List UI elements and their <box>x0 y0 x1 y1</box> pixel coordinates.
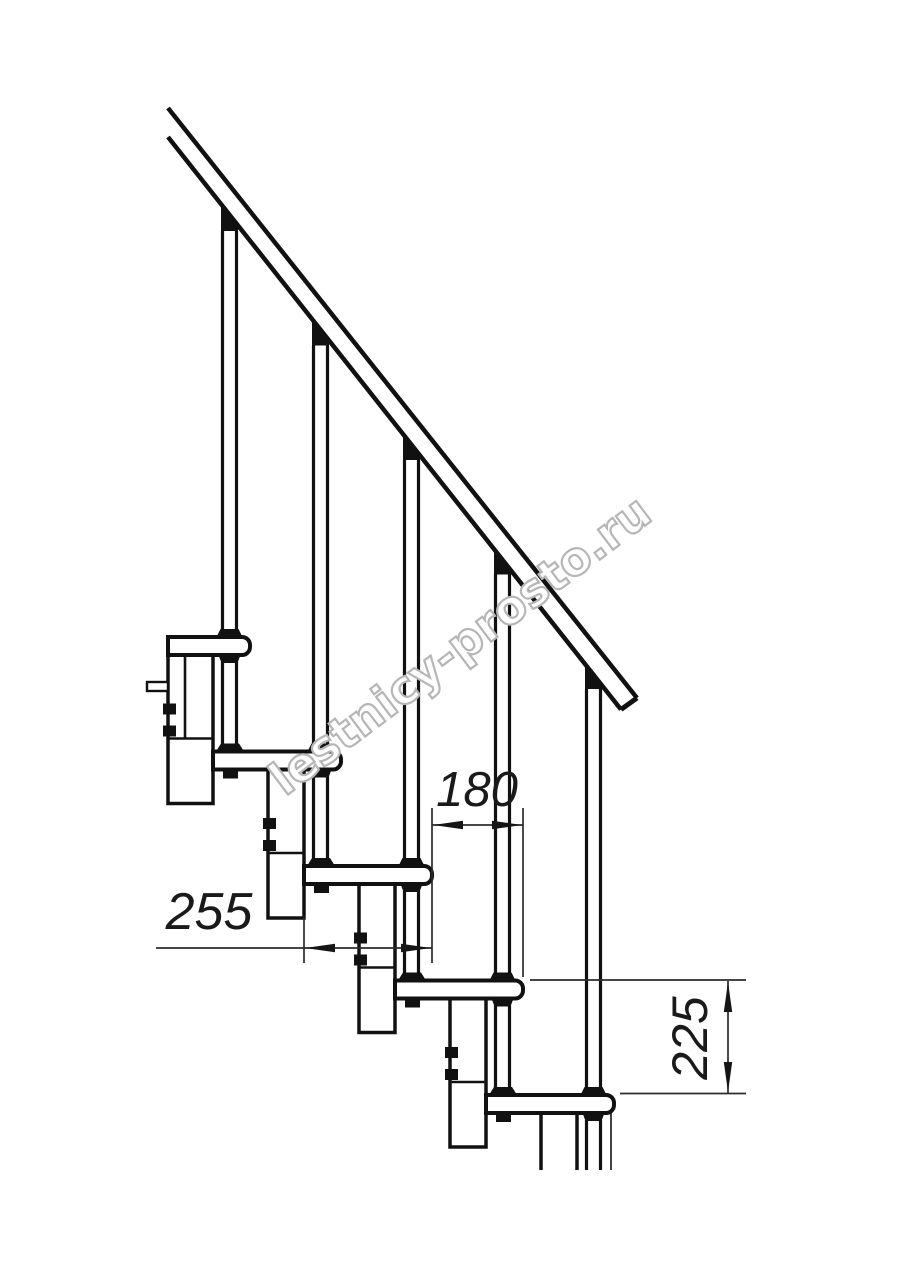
dimension-arrow <box>724 982 732 1012</box>
dimension-label-run: 180 <box>436 763 518 817</box>
tread <box>213 752 341 770</box>
landing-cap <box>398 973 426 981</box>
landing-cap <box>489 1087 517 1095</box>
bolt-nut <box>405 1000 420 1008</box>
staircase-drawing-page: 180 255 225 lestnicy-prosto.ru <box>0 0 914 1280</box>
baluster-base-cap <box>217 629 243 637</box>
tread <box>304 866 432 884</box>
baluster-base-cap <box>399 858 425 866</box>
upper-landing-stub <box>147 682 168 691</box>
tread <box>486 1095 614 1113</box>
clamp-bolt <box>445 1047 458 1058</box>
dimension-label-depth: 255 <box>165 883 254 941</box>
under-cap <box>583 1113 605 1121</box>
bolt-nut <box>314 885 329 893</box>
landing-cap <box>307 858 335 866</box>
clamp-bolt <box>163 704 176 715</box>
bolt-nut <box>223 771 238 779</box>
rail-upper-line <box>168 108 637 698</box>
stub <box>147 682 168 691</box>
dimension-arrow <box>401 944 431 952</box>
clamp-bolt <box>354 955 367 966</box>
baluster-base-cap <box>308 744 334 752</box>
bolt-nut <box>496 1114 511 1122</box>
landing-cap <box>216 744 244 752</box>
tread <box>168 637 250 655</box>
under-cap <box>310 770 332 778</box>
clamp-bolt <box>354 933 367 944</box>
balusters <box>221 205 602 1089</box>
dimension-arrow <box>492 821 522 829</box>
tread <box>395 981 523 999</box>
dimension-arrow <box>724 1062 732 1092</box>
dimension-label-riser: 225 <box>662 996 718 1081</box>
clamp-bolt <box>263 818 276 829</box>
dimension-arrow <box>433 821 463 829</box>
clamp-bolt <box>263 840 276 851</box>
baluster-base-cap <box>581 1087 607 1095</box>
handrail <box>168 108 637 710</box>
staircase-technical-drawing: 180 255 225 <box>0 0 914 1280</box>
baluster-base-cap <box>490 973 516 981</box>
under-cap <box>401 884 423 892</box>
clamp-bolt <box>163 726 176 737</box>
dimension-arrow <box>305 944 335 952</box>
under-cap <box>219 655 241 663</box>
under-cap <box>492 999 514 1007</box>
clamp-bolt <box>445 1069 458 1080</box>
